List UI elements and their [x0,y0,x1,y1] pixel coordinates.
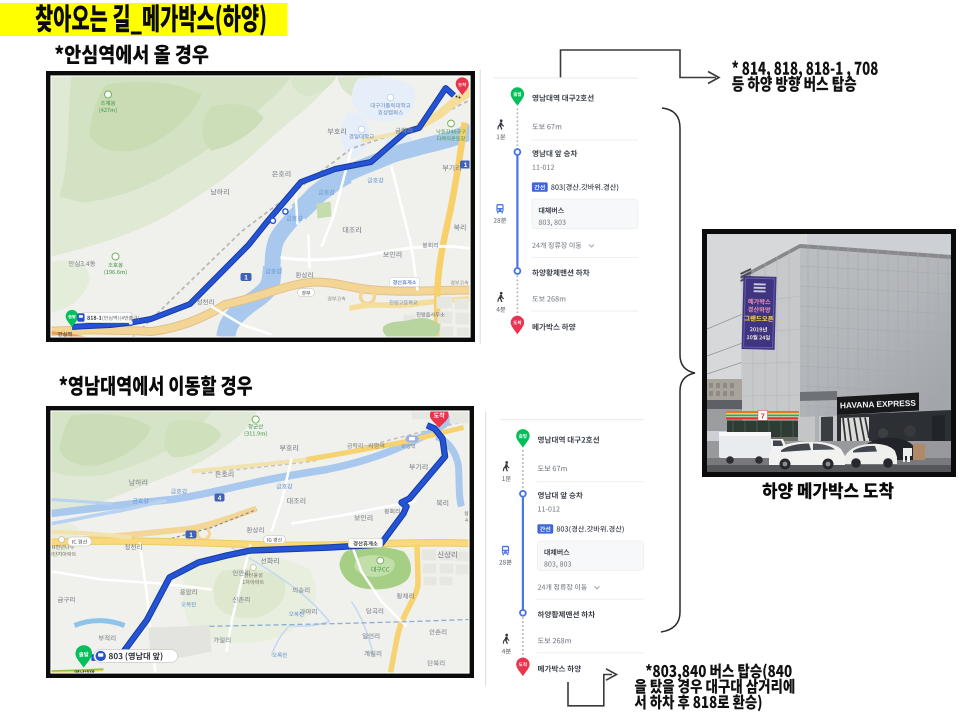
svg-text:1: 1 [189,532,193,539]
svg-text:1: 1 [464,162,468,169]
svg-text:7: 7 [761,411,765,420]
svg-text:1: 1 [244,275,248,282]
svg-text:4: 4 [218,495,222,502]
